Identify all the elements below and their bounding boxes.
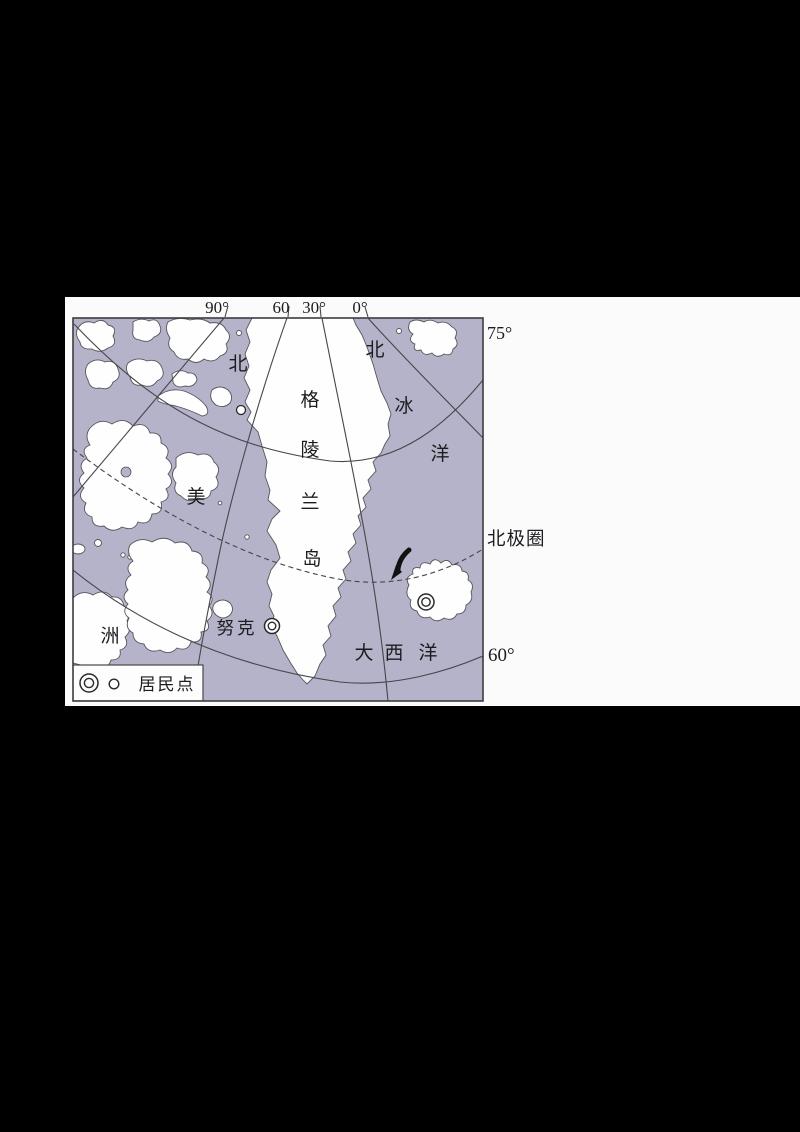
atlantic-ocean-char: 大 bbox=[354, 642, 373, 664]
nw-settlement-circle-marker bbox=[237, 406, 246, 415]
tiny-islet bbox=[397, 329, 402, 334]
archipelago-island bbox=[211, 387, 232, 407]
tiny-islet bbox=[218, 501, 222, 505]
lat-label-75: 75° bbox=[487, 323, 512, 343]
tiny-islet bbox=[121, 553, 125, 557]
iceland-city-marker-inner bbox=[422, 598, 430, 606]
archipelago-island bbox=[213, 600, 233, 618]
legend: 居民点 bbox=[71, 665, 203, 701]
north-america-char: 美 bbox=[186, 486, 205, 508]
arctic-ocean-char: 北 bbox=[365, 339, 384, 361]
arctic-ocean-char: 冰 bbox=[394, 395, 413, 417]
legend-label: 居民点 bbox=[139, 675, 196, 694]
arctic-circle-label: 北极圈 bbox=[487, 529, 546, 550]
nuuk-label: 努克 bbox=[217, 618, 258, 638]
greenland-char: 岛 bbox=[302, 548, 321, 570]
greenland-char: 兰 bbox=[300, 491, 319, 513]
greenland-char: 格 bbox=[300, 389, 319, 411]
lon-label-30: 30° bbox=[302, 298, 326, 317]
atlantic-ocean-char: 洋 bbox=[418, 642, 437, 664]
archipelago-island bbox=[76, 320, 114, 351]
arctic-ocean-char: 洋 bbox=[430, 443, 449, 465]
archipelago-islet bbox=[95, 540, 102, 547]
archipelago-islet bbox=[237, 331, 242, 336]
page-background: 北 冰 洋 大 西 洋 格 陵 兰 岛 北 美 洲 努克 居民点 bbox=[0, 0, 800, 1132]
archipelago-island bbox=[166, 318, 229, 362]
lon-label-90: 90° bbox=[205, 298, 229, 317]
mainland-mass bbox=[124, 538, 212, 652]
tiny-islet bbox=[245, 535, 249, 539]
greenland-char: 陵 bbox=[300, 439, 319, 461]
north-america-char: 北 bbox=[228, 353, 247, 375]
archipelago-island bbox=[172, 371, 197, 387]
lon-label-0: 0° bbox=[352, 298, 367, 317]
greenland-map-figure: 北 冰 洋 大 西 洋 格 陵 兰 岛 北 美 洲 努克 居民点 bbox=[0, 0, 800, 1132]
nuuk-marker-inner bbox=[268, 622, 276, 630]
atlantic-ocean-char: 西 bbox=[384, 643, 403, 664]
map-body: 北 冰 洋 大 西 洋 格 陵 兰 岛 北 美 洲 努克 居民点 bbox=[71, 318, 483, 701]
north-america-char: 洲 bbox=[100, 626, 119, 647]
lon-label-60: 60 bbox=[273, 298, 290, 317]
island-lake bbox=[121, 467, 131, 477]
lat-label-60: 60° bbox=[488, 645, 515, 666]
